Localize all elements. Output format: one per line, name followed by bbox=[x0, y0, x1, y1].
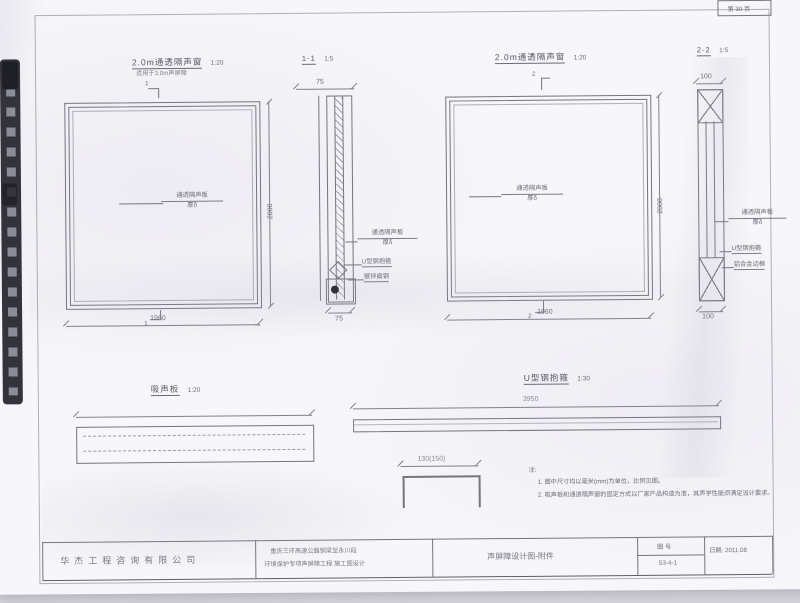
wrinkle-shadow bbox=[558, 57, 752, 479]
page-number-label: 第 30 页 bbox=[727, 4, 750, 13]
binding-smudge bbox=[2, 61, 18, 89]
page-number-box: 第 30 页 bbox=[717, 0, 771, 16]
drawing-sheet: 第 30 页 2.0m通透隔声窗 1:20 适用于3.0m声屏障 1 通透隔声板… bbox=[0, 0, 800, 603]
binding-glyphs bbox=[6, 67, 18, 395]
binding-smudge bbox=[2, 183, 17, 205]
book-binding-strip bbox=[0, 59, 23, 404]
wrinkle-shadow bbox=[41, 455, 422, 568]
